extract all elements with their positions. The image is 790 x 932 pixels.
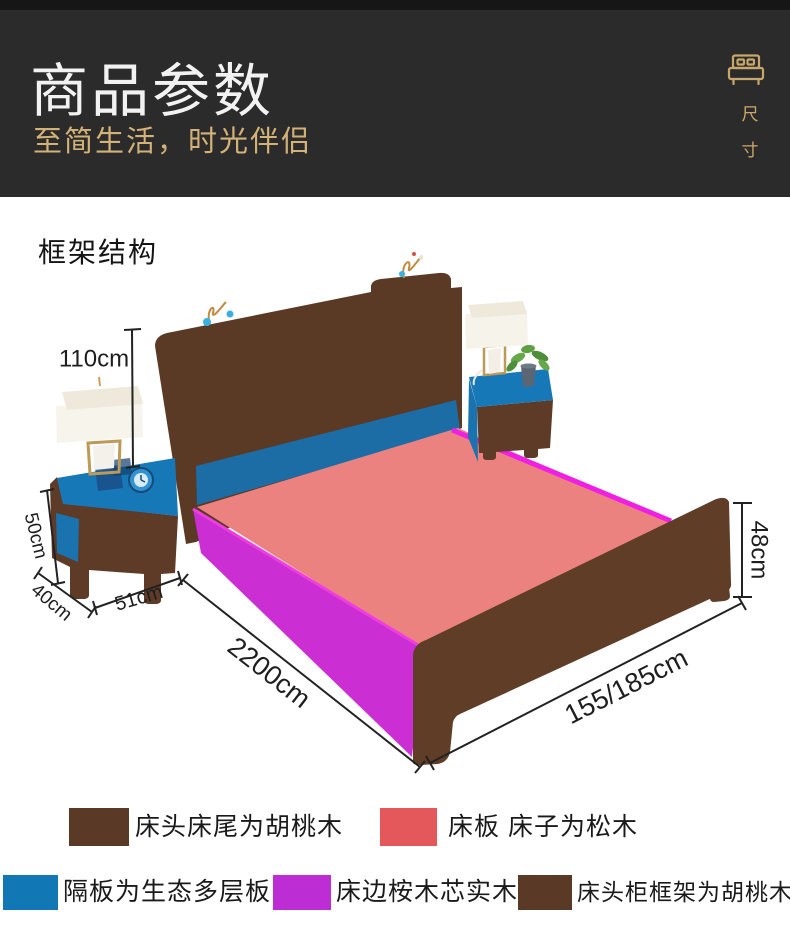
dimension-label-nightstand-depth: 40cm xyxy=(27,580,76,626)
bed-structure-diagram: 110cm 50cm 40cm 51cm 2200cm 155/185cm 48… xyxy=(0,210,790,810)
bed-size-icon xyxy=(727,54,765,88)
nightstand-right xyxy=(468,369,553,462)
size-label-vertical: 尺 寸 xyxy=(738,97,762,169)
headboard-decor-right xyxy=(399,252,423,278)
header-top-strip xyxy=(0,0,790,10)
legend-swatch xyxy=(380,808,437,846)
dimension-label-nightstand-width: 51cm xyxy=(112,581,165,616)
product-parameters-page: 商品参数 至简生活，时光伴侣 尺 寸 框架结构 xyxy=(0,0,790,932)
page-subtitle: 至简生活，时光伴侣 xyxy=(33,118,312,160)
size-label-char: 寸 xyxy=(738,133,762,169)
header-banner: 商品参数 至简生活，时光伴侣 尺 寸 xyxy=(0,0,790,197)
dimension-label-headboard-height: 110cm xyxy=(59,345,129,372)
dimension-label-nightstand-height: 50cm xyxy=(20,511,52,561)
size-label-char: 尺 xyxy=(738,97,762,133)
legend-swatch xyxy=(518,875,572,910)
page-title: 商品参数 xyxy=(30,44,274,128)
legend-label: 床板 床子为松木 xyxy=(448,808,638,846)
legend-label: 床边桉木芯实木 xyxy=(336,875,518,910)
alarm-clock xyxy=(129,468,153,492)
legend-swatch xyxy=(3,875,58,910)
legend-label: 床头柜框架为胡桃木 xyxy=(577,875,790,910)
legend-swatch xyxy=(69,808,129,846)
legend-swatch xyxy=(273,875,331,910)
dimension-label-footboard-height: 48cm xyxy=(746,521,773,580)
legend-label: 隔板为生态多层板 xyxy=(63,875,271,910)
legend-label: 床头床尾为胡桃木 xyxy=(135,808,343,846)
